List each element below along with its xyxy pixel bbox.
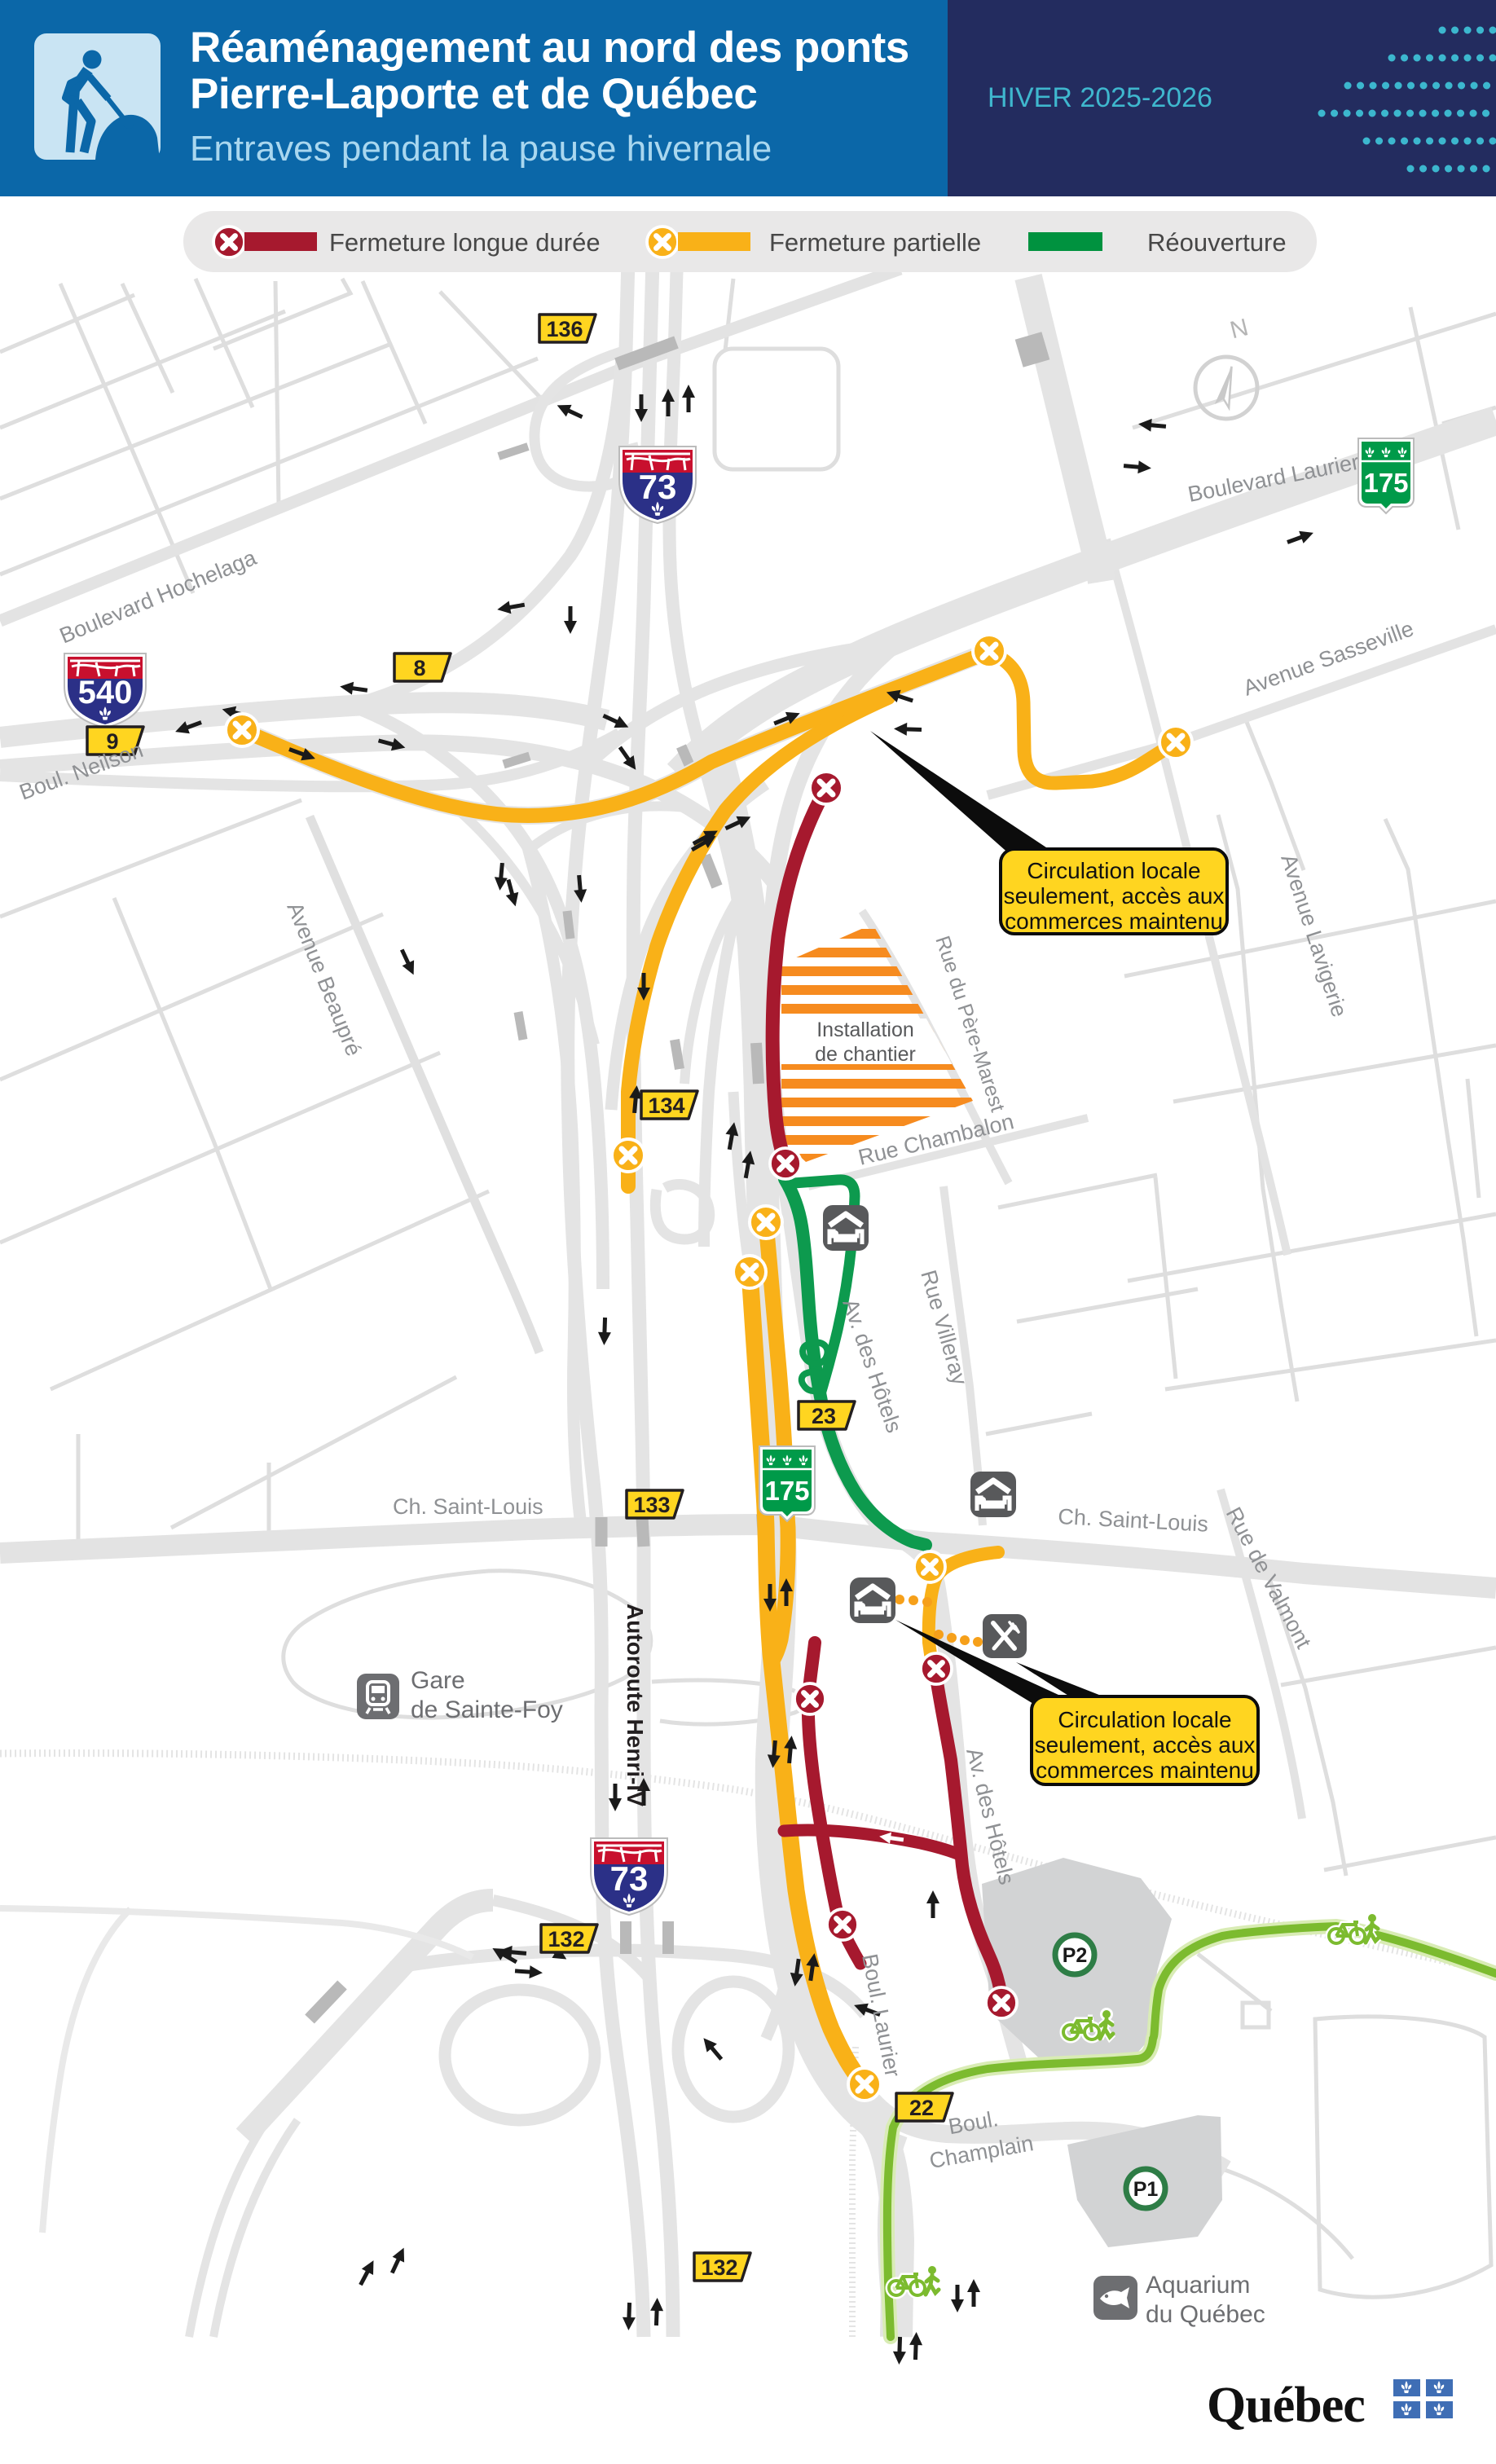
svg-text:8: 8: [413, 656, 425, 680]
svg-text:132: 132: [548, 1927, 584, 1951]
svg-text:540: 540: [78, 675, 133, 711]
svg-text:du Québec: du Québec: [1146, 2301, 1265, 2328]
svg-text:P1: P1: [1133, 2178, 1159, 2201]
svg-text:Québec: Québec: [1207, 2378, 1365, 2433]
svg-text:Pierre-Laporte et de Québec: Pierre-Laporte et de Québec: [190, 70, 757, 118]
svg-text:seulement, accès aux: seulement, accès aux: [1035, 1732, 1256, 1758]
svg-text:Fermeture longue durée: Fermeture longue durée: [329, 228, 601, 257]
svg-text:Autoroute Henri-IV: Autoroute Henri-IV: [623, 1604, 648, 1806]
svg-text:HIVER 2025-2026: HIVER 2025-2026: [988, 82, 1212, 113]
svg-text:Réouverture: Réouverture: [1147, 228, 1287, 257]
svg-text:23: 23: [812, 1404, 836, 1428]
svg-text:de chantier: de chantier: [815, 1043, 916, 1066]
svg-text:73: 73: [639, 468, 677, 506]
svg-text:Circulation locale: Circulation locale: [1058, 1707, 1231, 1732]
svg-text:134: 134: [648, 1093, 684, 1118]
svg-text:seulement, accès aux: seulement, accès aux: [1004, 883, 1225, 909]
svg-text:Fermeture partielle: Fermeture partielle: [769, 228, 981, 257]
svg-text:Gare: Gare: [411, 1667, 465, 1694]
svg-text:132: 132: [701, 2255, 737, 2280]
svg-text:Ch. Saint-Louis: Ch. Saint-Louis: [393, 1494, 543, 1519]
svg-text:175: 175: [1363, 468, 1408, 498]
svg-text:Aquarium: Aquarium: [1146, 2272, 1250, 2299]
svg-text:P2: P2: [1063, 1944, 1088, 1967]
svg-text:133: 133: [633, 1493, 670, 1517]
svg-text:de Sainte-Foy: de Sainte-Foy: [411, 1696, 563, 1723]
svg-text:Réaménagement au nord des pont: Réaménagement au nord des ponts: [190, 24, 909, 72]
svg-text:commerces maintenu: commerces maintenu: [1036, 1758, 1254, 1783]
svg-text:Circulation locale: Circulation locale: [1027, 858, 1200, 883]
svg-text:136: 136: [546, 317, 583, 341]
svg-text:Entraves pendant la pause hive: Entraves pendant la pause hivernale: [190, 129, 772, 169]
svg-text:commerces maintenu: commerces maintenu: [1005, 909, 1223, 934]
svg-text:Installation: Installation: [816, 1019, 914, 1041]
svg-text:22: 22: [909, 2096, 934, 2120]
